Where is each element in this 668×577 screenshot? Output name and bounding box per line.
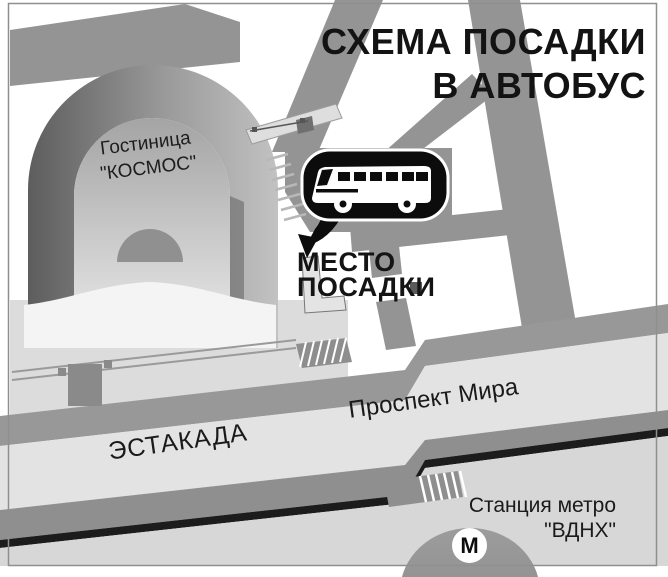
railing-post bbox=[58, 368, 66, 376]
metro-station-label: Станция метро "ВДНХ" bbox=[469, 493, 616, 543]
hotel-building bbox=[24, 65, 278, 348]
page-title: СХЕМА ПОСАДКИ В АВТОБУС bbox=[321, 20, 646, 108]
metro-station-line1: Станция метро bbox=[469, 493, 616, 518]
metro-station-line2: "ВДНХ" bbox=[469, 518, 616, 543]
metro-m-icon: М bbox=[452, 528, 487, 563]
railing-post bbox=[252, 127, 257, 132]
page-title-line1: СХЕМА ПОСАДКИ bbox=[321, 20, 646, 64]
bus-boarding-scheme-map: СХЕМА ПОСАДКИ В АВТОБУС Гостиница "КОСМО… bbox=[0, 0, 668, 577]
railing-post bbox=[104, 360, 112, 368]
boarding-label-line2: ПОСАДКИ bbox=[297, 275, 435, 300]
road-stub-lower bbox=[376, 298, 416, 350]
boarding-point-label: МЕСТО ПОСАДКИ bbox=[297, 250, 435, 300]
underpass-entrance bbox=[68, 364, 102, 406]
page-title-line2: В АВТОБУС bbox=[321, 64, 646, 108]
railing-post bbox=[300, 118, 305, 123]
